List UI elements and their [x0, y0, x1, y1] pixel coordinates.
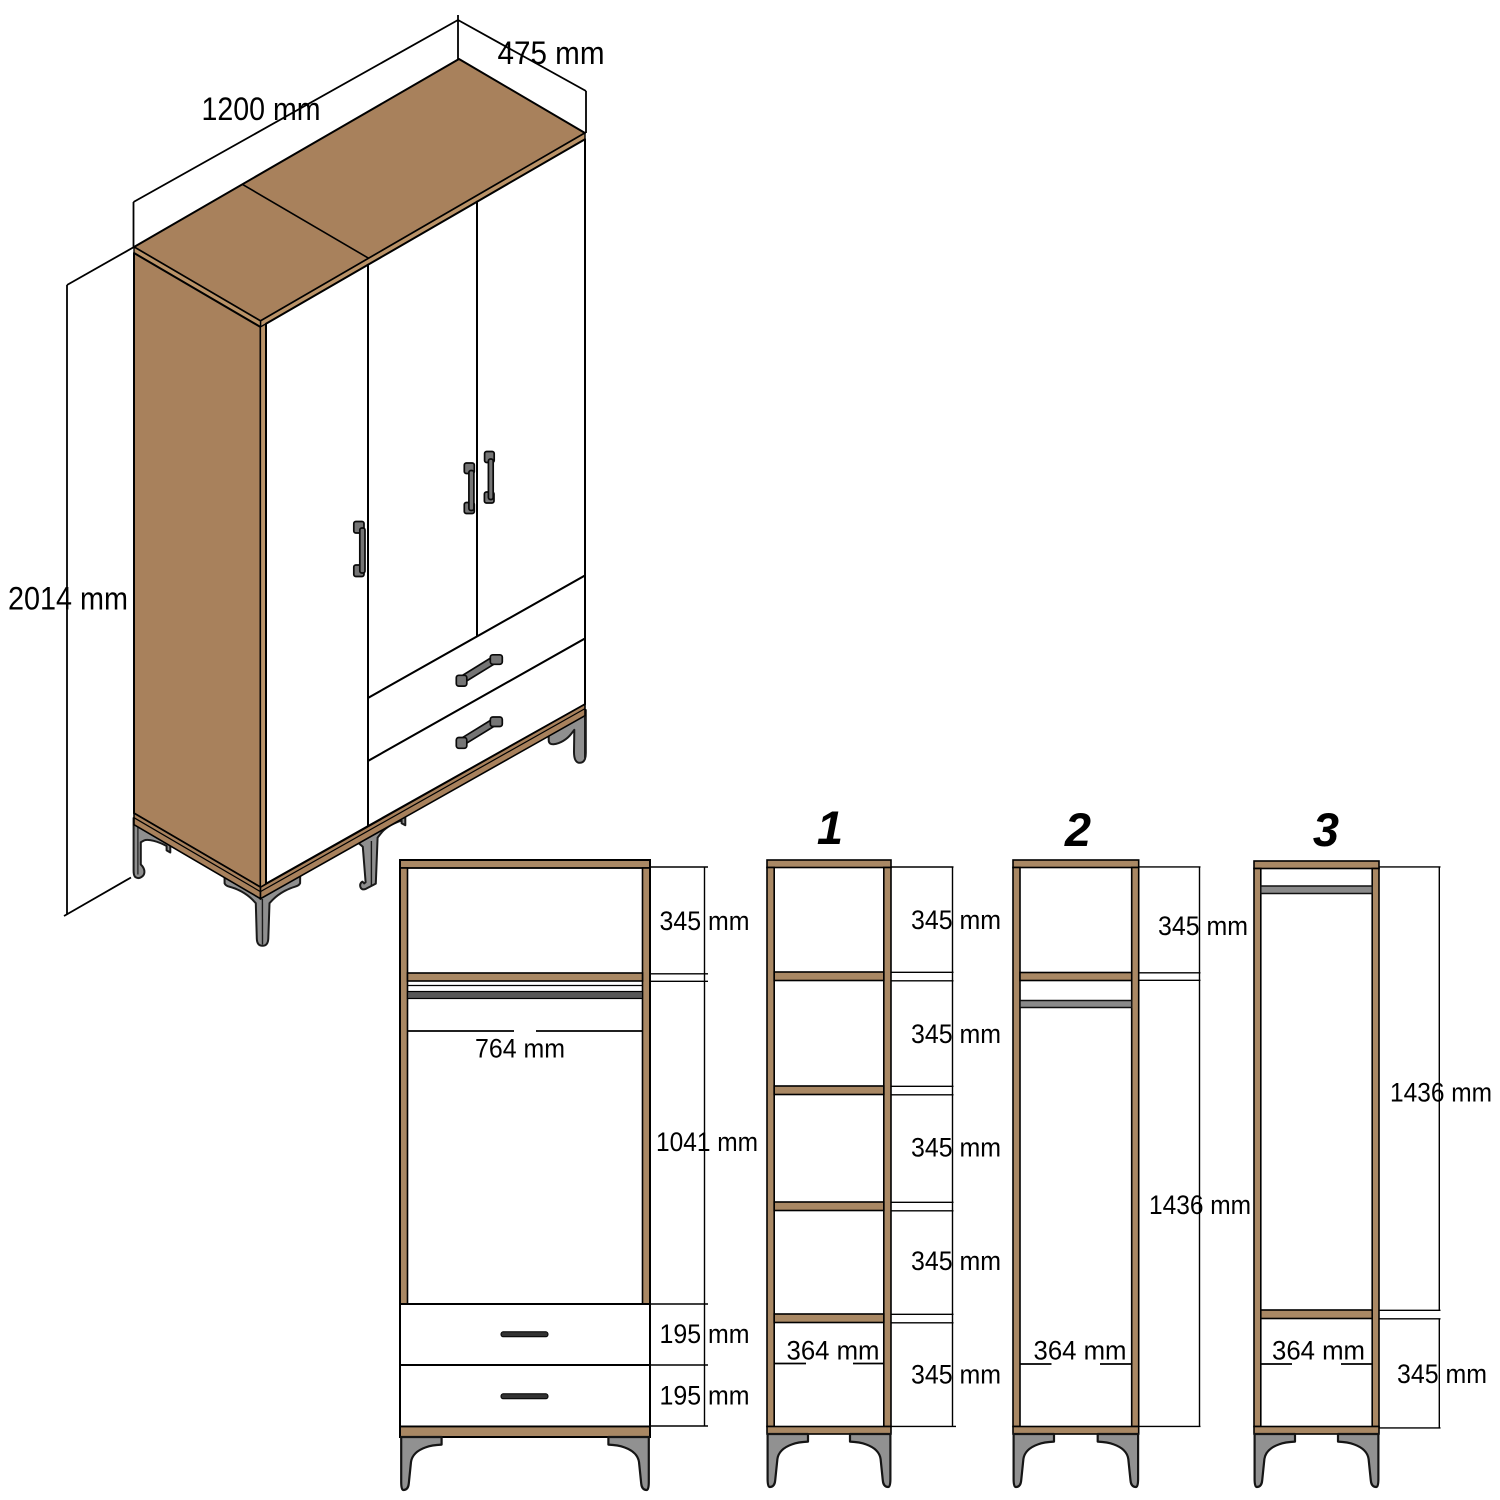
svg-text:364 mm: 364 mm — [1034, 1336, 1127, 1366]
svg-text:764 mm: 764 mm — [475, 1034, 565, 1064]
svg-text:195 mm: 195 mm — [660, 1319, 750, 1349]
svg-text:2014 mm: 2014 mm — [8, 581, 128, 617]
svg-text:475 mm: 475 mm — [498, 35, 605, 71]
svg-text:1: 1 — [817, 801, 843, 854]
svg-text:345 mm: 345 mm — [911, 1019, 1001, 1049]
svg-text:1200 mm: 1200 mm — [202, 91, 321, 127]
svg-text:364 mm: 364 mm — [787, 1336, 880, 1366]
svg-text:3: 3 — [1313, 803, 1339, 856]
svg-text:1436 mm: 1436 mm — [1149, 1190, 1251, 1220]
svg-text:345 mm: 345 mm — [660, 906, 750, 936]
svg-text:345 mm: 345 mm — [911, 905, 1001, 935]
svg-text:345 mm: 345 mm — [911, 1246, 1001, 1276]
svg-text:364 mm: 364 mm — [1272, 1336, 1365, 1366]
svg-text:345 mm: 345 mm — [911, 1360, 1001, 1390]
svg-text:345 mm: 345 mm — [911, 1133, 1001, 1163]
svg-text:1041 mm: 1041 mm — [656, 1127, 758, 1157]
svg-text:195 mm: 195 mm — [660, 1381, 750, 1411]
svg-text:345 mm: 345 mm — [1397, 1359, 1487, 1389]
svg-text:345 mm: 345 mm — [1158, 911, 1248, 941]
svg-text:1436 mm: 1436 mm — [1390, 1078, 1492, 1108]
svg-text:2: 2 — [1064, 803, 1091, 856]
